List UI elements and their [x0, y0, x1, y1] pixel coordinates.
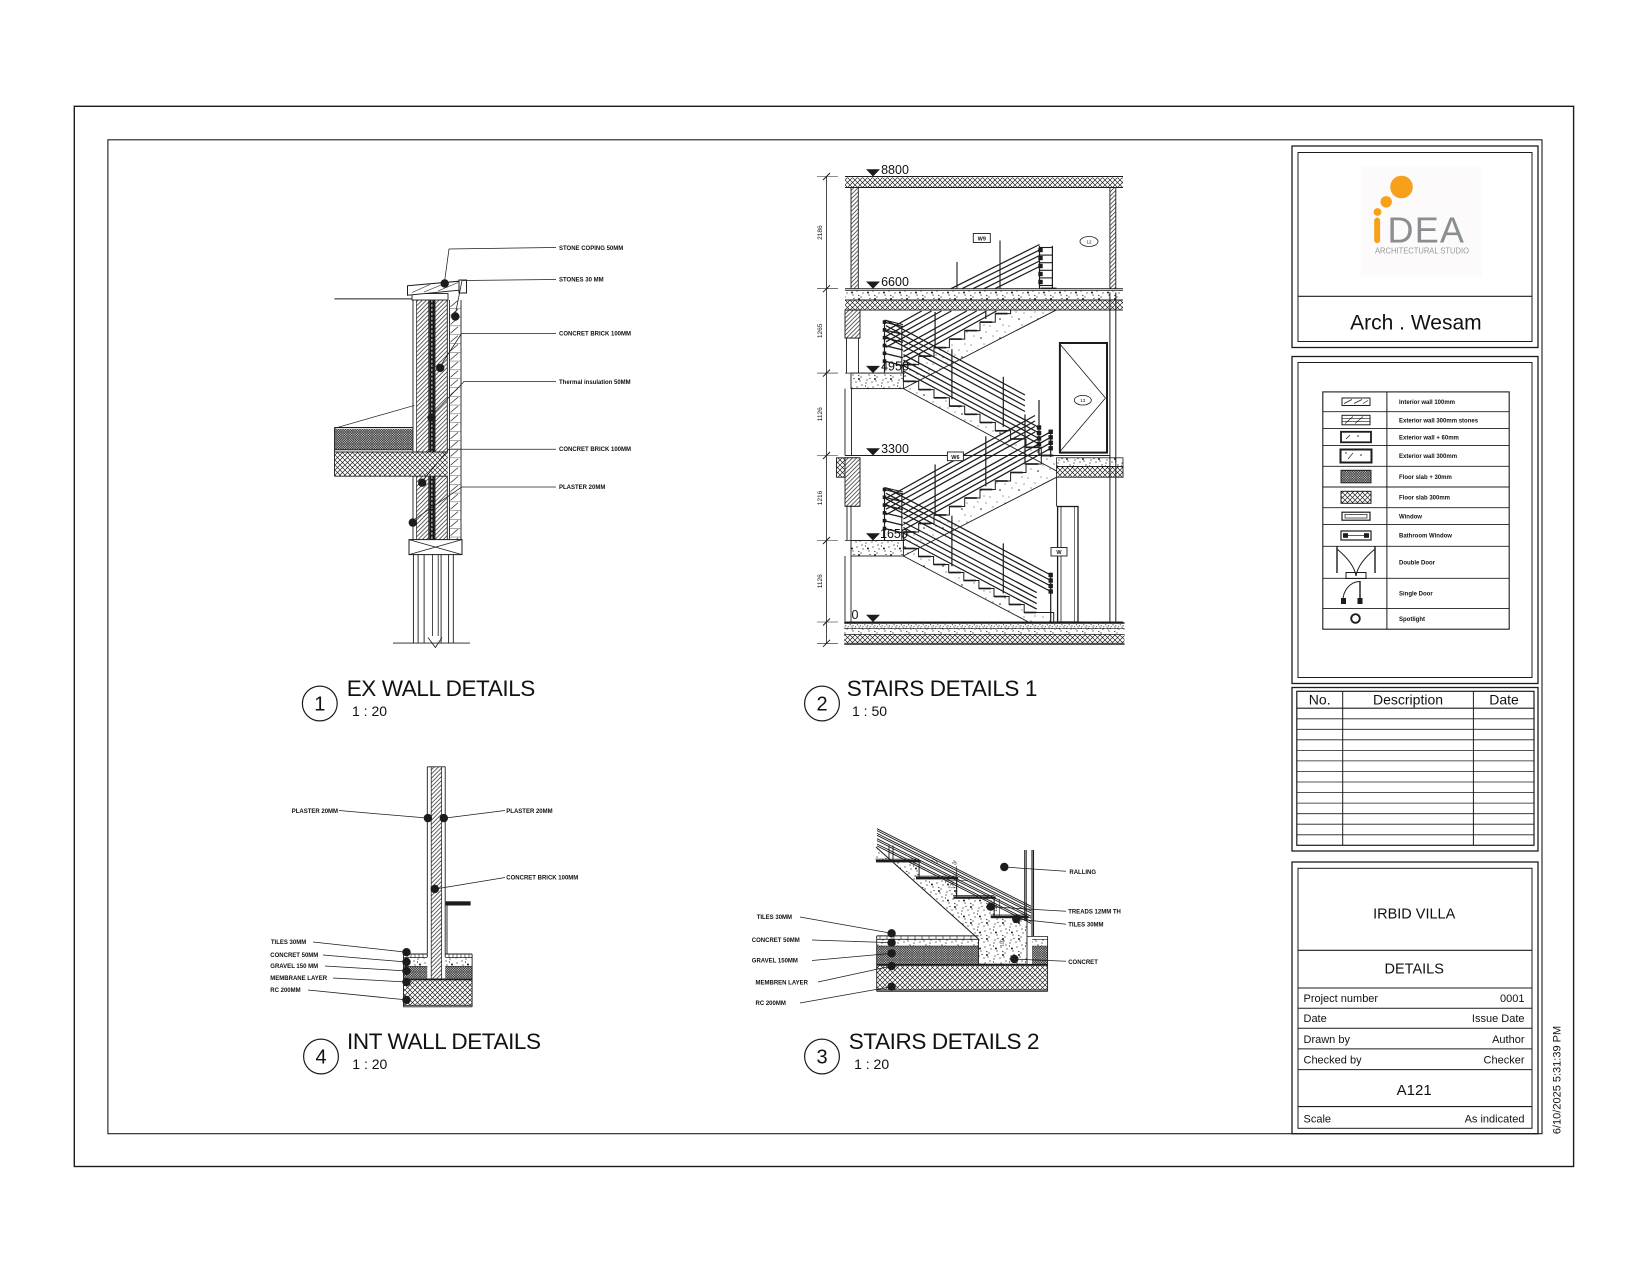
svg-text:Checked by: Checked by: [1304, 1055, 1363, 1067]
svg-text:CONCRET BRICK 100MM: CONCRET BRICK 100MM: [559, 447, 631, 453]
svg-text:2: 2: [816, 694, 827, 716]
svg-text:TREADS 12MM TH: TREADS 12MM TH: [1068, 910, 1121, 916]
svg-text:25: 25: [951, 859, 958, 866]
svg-text:CONCRET BRICK 100MM: CONCRET BRICK 100MM: [559, 332, 631, 338]
svg-text:CONCRET 50MM: CONCRET 50MM: [270, 953, 318, 959]
svg-text:1265: 1265: [817, 323, 824, 338]
svg-text:1650: 1650: [880, 527, 908, 541]
svg-text:CONCRET: CONCRET: [1068, 960, 1098, 966]
svg-text:1 : 20: 1 : 20: [352, 703, 387, 719]
svg-text:Date: Date: [1304, 1013, 1327, 1025]
svg-text:ARCHITECTURAL STUDIO: ARCHITECTURAL STUDIO: [1375, 245, 1469, 255]
svg-text:0001: 0001: [1500, 993, 1524, 1005]
svg-text:PLASTER 20MM: PLASTER 20MM: [292, 809, 338, 815]
svg-text:Scale: Scale: [1304, 1114, 1332, 1126]
svg-text:Checker: Checker: [1484, 1055, 1525, 1067]
svg-text:Spotlight: Spotlight: [1399, 617, 1425, 623]
svg-text:1 : 20: 1 : 20: [352, 1056, 387, 1072]
svg-text:Bathroom Window: Bathroom Window: [1399, 534, 1452, 540]
svg-text:Double Door: Double Door: [1399, 561, 1436, 567]
svg-text:W6: W6: [951, 455, 959, 461]
svg-text:STAIRS DETAILS 1: STAIRS DETAILS 1: [847, 676, 1037, 701]
svg-text:8800: 8800: [881, 163, 909, 177]
svg-text:MEMBREN LAYER: MEMBREN LAYER: [756, 980, 809, 986]
svg-text:Description: Description: [1373, 691, 1443, 707]
svg-text:Arch . Wesam: Arch . Wesam: [1350, 312, 1481, 335]
svg-text:Single Door: Single Door: [1399, 592, 1433, 598]
svg-text:12: 12: [1086, 240, 1092, 245]
svg-text:1216: 1216: [817, 490, 824, 505]
svg-text:STONE COPING 50MM: STONE COPING 50MM: [559, 246, 623, 252]
svg-text:CONCRET BRICK 100MM: CONCRET BRICK 100MM: [506, 876, 578, 882]
svg-text:6/10/2025 5:31:39 PM: 6/10/2025 5:31:39 PM: [1552, 1026, 1564, 1134]
svg-text:Window: Window: [1399, 514, 1422, 520]
svg-text:GRAVEL 150MM: GRAVEL 150MM: [752, 959, 798, 965]
svg-text:2186: 2186: [817, 225, 824, 240]
svg-text:Exterior wall 300mm stones: Exterior wall 300mm stones: [1399, 418, 1479, 424]
svg-text:W9: W9: [978, 237, 986, 243]
svg-text:GRAVEL 150 MM: GRAVEL 150 MM: [270, 964, 318, 970]
svg-text:RC 200MM: RC 200MM: [270, 988, 300, 994]
svg-text:RC 200MM: RC 200MM: [756, 1001, 786, 1007]
svg-text:3300: 3300: [881, 442, 909, 456]
svg-text:CONCRET 50MM: CONCRET 50MM: [752, 938, 800, 944]
svg-text:DETAILS: DETAILS: [1385, 962, 1444, 978]
svg-text:Thermal insulation 50MM: Thermal insulation 50MM: [559, 380, 631, 386]
svg-text:4950: 4950: [881, 360, 909, 374]
svg-text:1 : 50: 1 : 50: [852, 703, 887, 719]
svg-text:PLASTER 20MM: PLASTER 20MM: [506, 809, 552, 815]
svg-text:PLASTER 20MM: PLASTER 20MM: [559, 485, 605, 491]
svg-text:Interior wall 100mm: Interior wall 100mm: [1399, 400, 1455, 406]
svg-text:Issue Date: Issue Date: [1472, 1013, 1525, 1025]
svg-text:Exterior wall + 60mm: Exterior wall + 60mm: [1399, 435, 1459, 441]
svg-text:A121: A121: [1397, 1082, 1432, 1099]
svg-text:Exterior wall 300mm: Exterior wall 300mm: [1399, 454, 1457, 460]
svg-text:INT WALL DETAILS: INT WALL DETAILS: [347, 1029, 541, 1054]
svg-text:W: W: [1056, 550, 1062, 556]
svg-text:3: 3: [816, 1047, 827, 1069]
svg-text:Floor slab + 30mm: Floor slab + 30mm: [1399, 475, 1452, 481]
svg-text:TILES 30MM: TILES 30MM: [757, 915, 792, 921]
svg-text:110: 110: [1000, 939, 1005, 947]
svg-text:As indicated: As indicated: [1465, 1114, 1525, 1126]
svg-text:RALLING: RALLING: [1069, 870, 1096, 876]
svg-text:MEMBRANE LAYER: MEMBRANE LAYER: [270, 976, 327, 982]
svg-text:13: 13: [1080, 398, 1086, 403]
svg-text:Author: Author: [1492, 1034, 1525, 1046]
svg-text:Drawn by: Drawn by: [1304, 1034, 1351, 1046]
svg-text:Date: Date: [1489, 691, 1519, 707]
svg-text:6600: 6600: [881, 275, 909, 289]
svg-text:EX WALL DETAILS: EX WALL DETAILS: [347, 676, 535, 701]
svg-text:170: 170: [950, 881, 955, 889]
svg-text:STAIRS DETAILS 2: STAIRS DETAILS 2: [849, 1029, 1039, 1054]
svg-text:0: 0: [852, 608, 859, 622]
svg-text:1 : 20: 1 : 20: [854, 1056, 889, 1072]
svg-text:1126: 1126: [817, 407, 824, 421]
svg-text:4: 4: [315, 1047, 326, 1069]
svg-text:TILES 30MM: TILES 30MM: [1068, 923, 1103, 929]
svg-text:STONES 30 MM: STONES 30 MM: [559, 278, 604, 284]
svg-text:Project number: Project number: [1304, 993, 1379, 1005]
svg-text:Floor slab 300mm: Floor slab 300mm: [1399, 496, 1450, 502]
svg-text:TILES 30MM: TILES 30MM: [271, 940, 306, 946]
svg-text:1126: 1126: [817, 574, 824, 588]
svg-text:1: 1: [314, 694, 325, 716]
svg-text:No.: No.: [1309, 691, 1331, 707]
svg-text:IRBID VILLA: IRBID VILLA: [1373, 907, 1456, 923]
